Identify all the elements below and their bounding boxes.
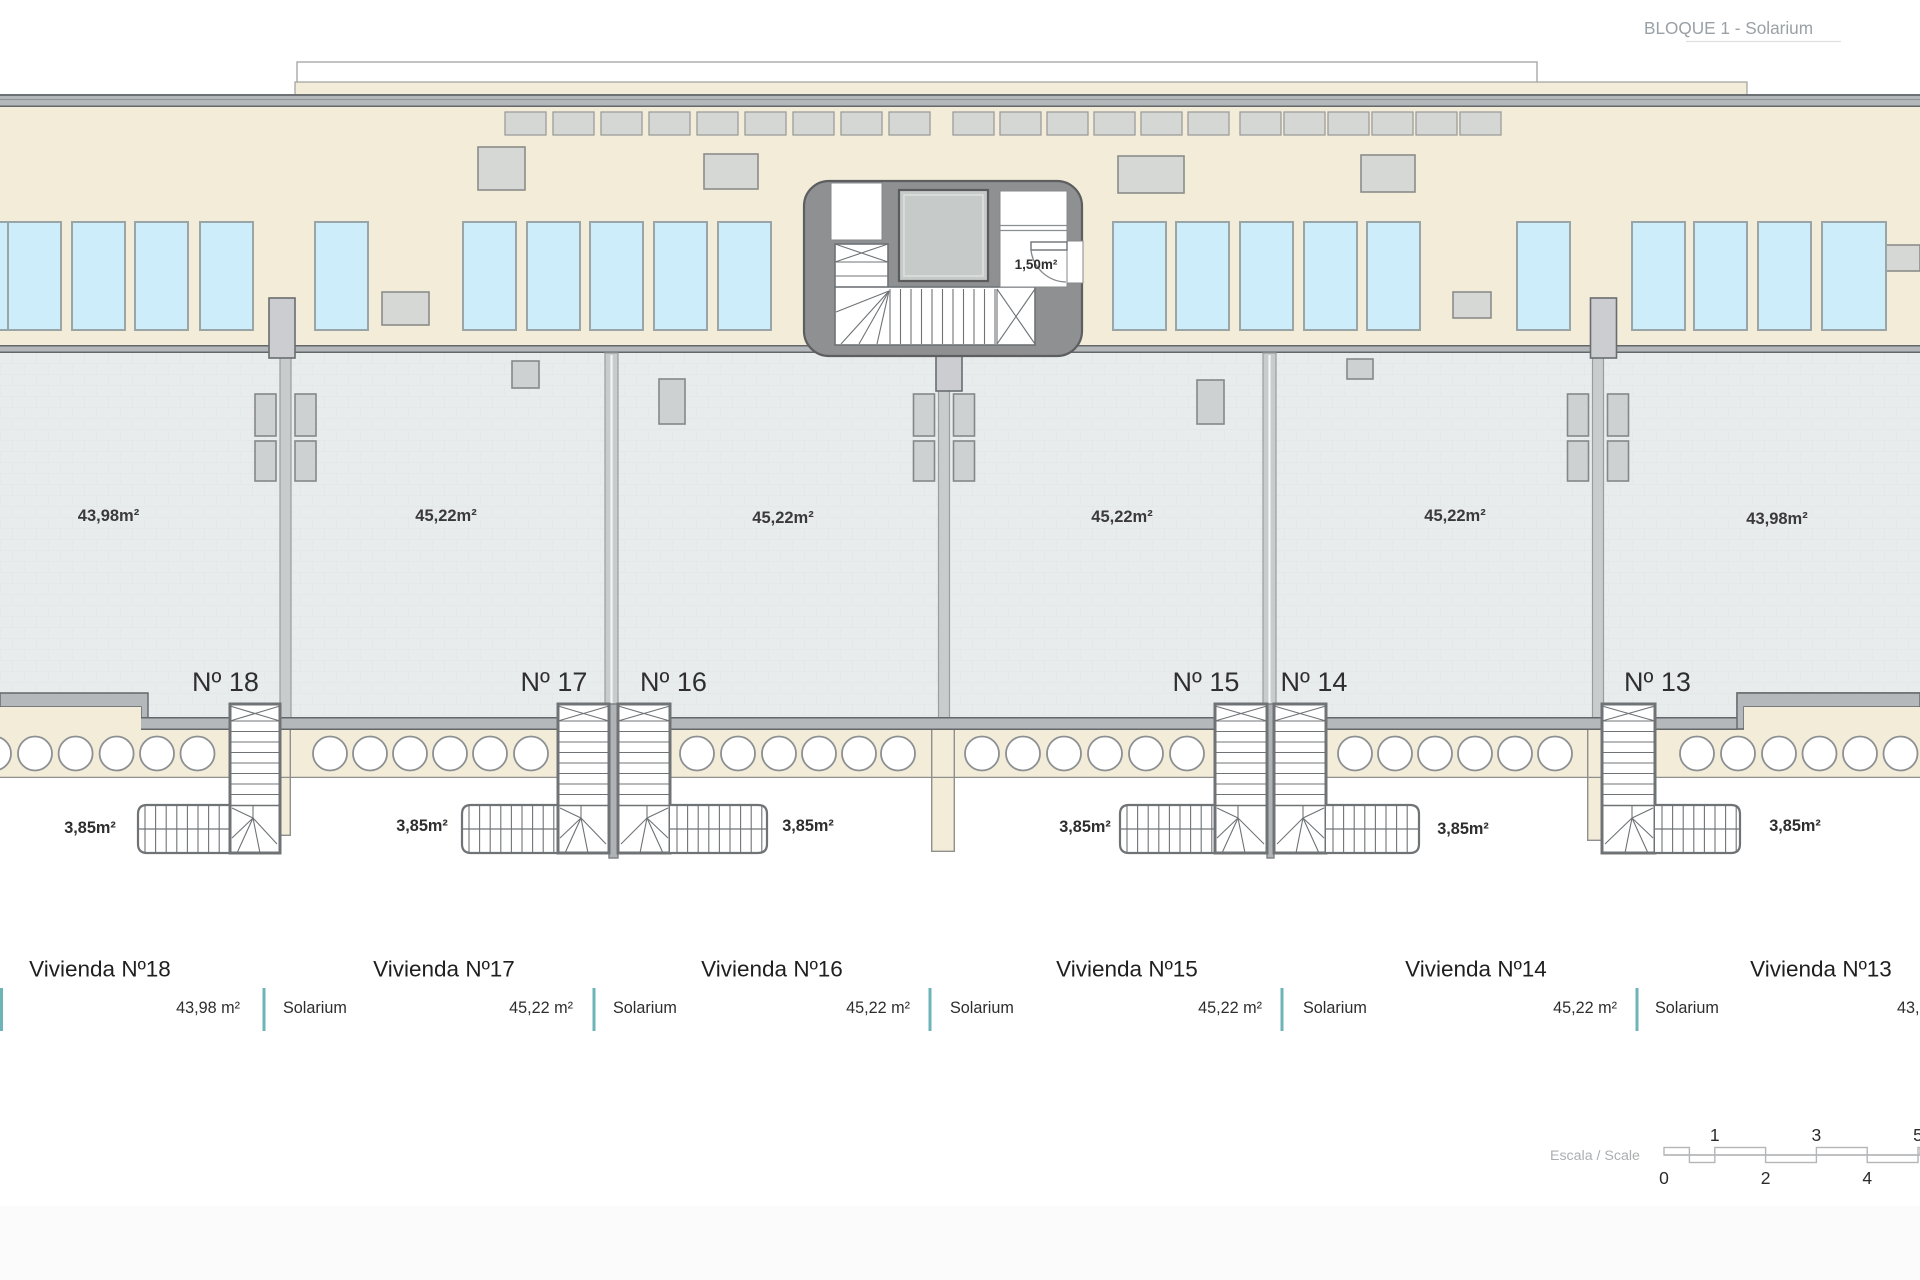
svg-text:Vivienda Nº17: Vivienda Nº17 (373, 957, 515, 982)
svg-text:Nº 16: Nº 16 (640, 667, 707, 697)
svg-text:45,22m²: 45,22m² (1424, 507, 1486, 525)
svg-text:3: 3 (1812, 1125, 1822, 1145)
svg-text:5: 5 (1913, 1125, 1920, 1145)
svg-text:3,85m²: 3,85m² (1059, 818, 1111, 836)
svg-text:45,22 m²: 45,22 m² (1553, 999, 1617, 1017)
svg-text:45,22 m²: 45,22 m² (509, 999, 573, 1017)
svg-text:45,22 m²: 45,22 m² (846, 999, 910, 1017)
svg-text:Solarium: Solarium (613, 999, 677, 1017)
svg-text:BLOQUE 1 - Solarium: BLOQUE 1 - Solarium (1644, 18, 1813, 38)
svg-text:Solarium: Solarium (1303, 999, 1367, 1017)
svg-text:Solarium: Solarium (950, 999, 1014, 1017)
svg-text:Nº 17: Nº 17 (521, 667, 588, 697)
svg-text:Nº 14: Nº 14 (1281, 667, 1348, 697)
svg-text:Solarium: Solarium (283, 999, 347, 1017)
svg-text:4: 4 (1862, 1168, 1872, 1188)
svg-text:2: 2 (1761, 1168, 1771, 1188)
svg-text:Vivienda Nº13: Vivienda Nº13 (1750, 957, 1892, 982)
svg-text:43,98 m²: 43,98 m² (1897, 999, 1920, 1017)
svg-text:3,85m²: 3,85m² (396, 817, 448, 835)
svg-text:45,22 m²: 45,22 m² (1198, 999, 1262, 1017)
svg-text:3,85m²: 3,85m² (1769, 817, 1821, 835)
svg-text:Vivienda Nº14: Vivienda Nº14 (1405, 957, 1547, 982)
svg-text:Solarium: Solarium (1655, 999, 1719, 1017)
svg-text:45,22m²: 45,22m² (1091, 508, 1153, 526)
svg-text:0: 0 (1659, 1168, 1669, 1188)
svg-text:45,22m²: 45,22m² (752, 509, 814, 527)
svg-text:43,98m²: 43,98m² (78, 507, 140, 525)
svg-text:Nº 13: Nº 13 (1624, 667, 1691, 697)
svg-text:3,85m²: 3,85m² (64, 819, 116, 837)
svg-text:Nº 18: Nº 18 (192, 667, 259, 697)
svg-text:1: 1 (1710, 1125, 1720, 1145)
svg-text:Vivienda Nº16: Vivienda Nº16 (701, 957, 843, 982)
svg-text:Vivienda Nº18: Vivienda Nº18 (29, 957, 171, 982)
svg-text:Nº 15: Nº 15 (1173, 667, 1240, 697)
svg-text:Escala / Scale: Escala / Scale (1550, 1148, 1640, 1164)
svg-text:3,85m²: 3,85m² (782, 817, 834, 835)
svg-text:43,98m²: 43,98m² (1746, 510, 1808, 528)
svg-text:3,85m²: 3,85m² (1437, 820, 1489, 838)
svg-text:45,22m²: 45,22m² (415, 507, 477, 525)
svg-text:Vivienda Nº15: Vivienda Nº15 (1056, 957, 1198, 982)
svg-text:1,50m²: 1,50m² (1015, 257, 1058, 272)
svg-text:43,98 m²: 43,98 m² (176, 999, 240, 1017)
